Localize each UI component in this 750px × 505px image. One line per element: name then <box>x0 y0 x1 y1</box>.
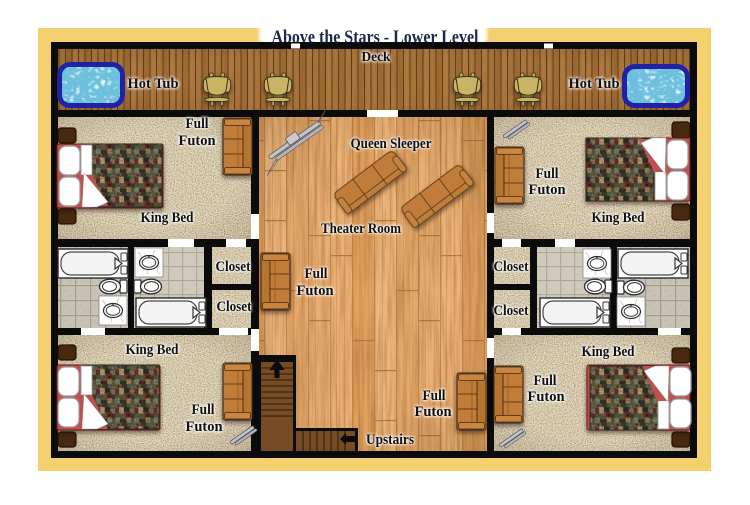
svg-text:Full: Full <box>423 388 446 404</box>
svg-text:Futon: Futon <box>528 389 566 405</box>
svg-text:Hot Tub: Hot Tub <box>128 76 179 92</box>
svg-text:Upstairs: Upstairs <box>366 432 414 448</box>
svg-text:Closet: Closet <box>494 259 529 275</box>
svg-text:Futon: Futon <box>179 133 217 149</box>
svg-text:Full: Full <box>536 166 559 182</box>
svg-text:King Bed: King Bed <box>126 342 180 358</box>
svg-text:Futon: Futon <box>529 182 567 198</box>
svg-text:Futon: Futon <box>186 419 224 435</box>
svg-text:Full: Full <box>534 373 557 389</box>
svg-text:Queen Sleeper: Queen Sleeper <box>351 136 432 152</box>
svg-text:King Bed: King Bed <box>582 344 636 360</box>
svg-text:Theater Room: Theater Room <box>321 221 401 237</box>
svg-text:Closet: Closet <box>494 303 529 319</box>
svg-text:Full: Full <box>186 116 209 132</box>
svg-text:Closet: Closet <box>216 259 251 275</box>
svg-text:Full: Full <box>305 266 328 282</box>
svg-text:Deck: Deck <box>362 50 391 65</box>
svg-text:Closet: Closet <box>217 299 252 315</box>
svg-text:Hot Tub: Hot Tub <box>569 76 620 92</box>
svg-text:King Bed: King Bed <box>592 210 646 226</box>
svg-text:Full: Full <box>192 402 215 418</box>
svg-text:Futon: Futon <box>415 404 453 420</box>
svg-text:King Bed: King Bed <box>141 210 195 226</box>
svg-text:Futon: Futon <box>297 283 335 299</box>
